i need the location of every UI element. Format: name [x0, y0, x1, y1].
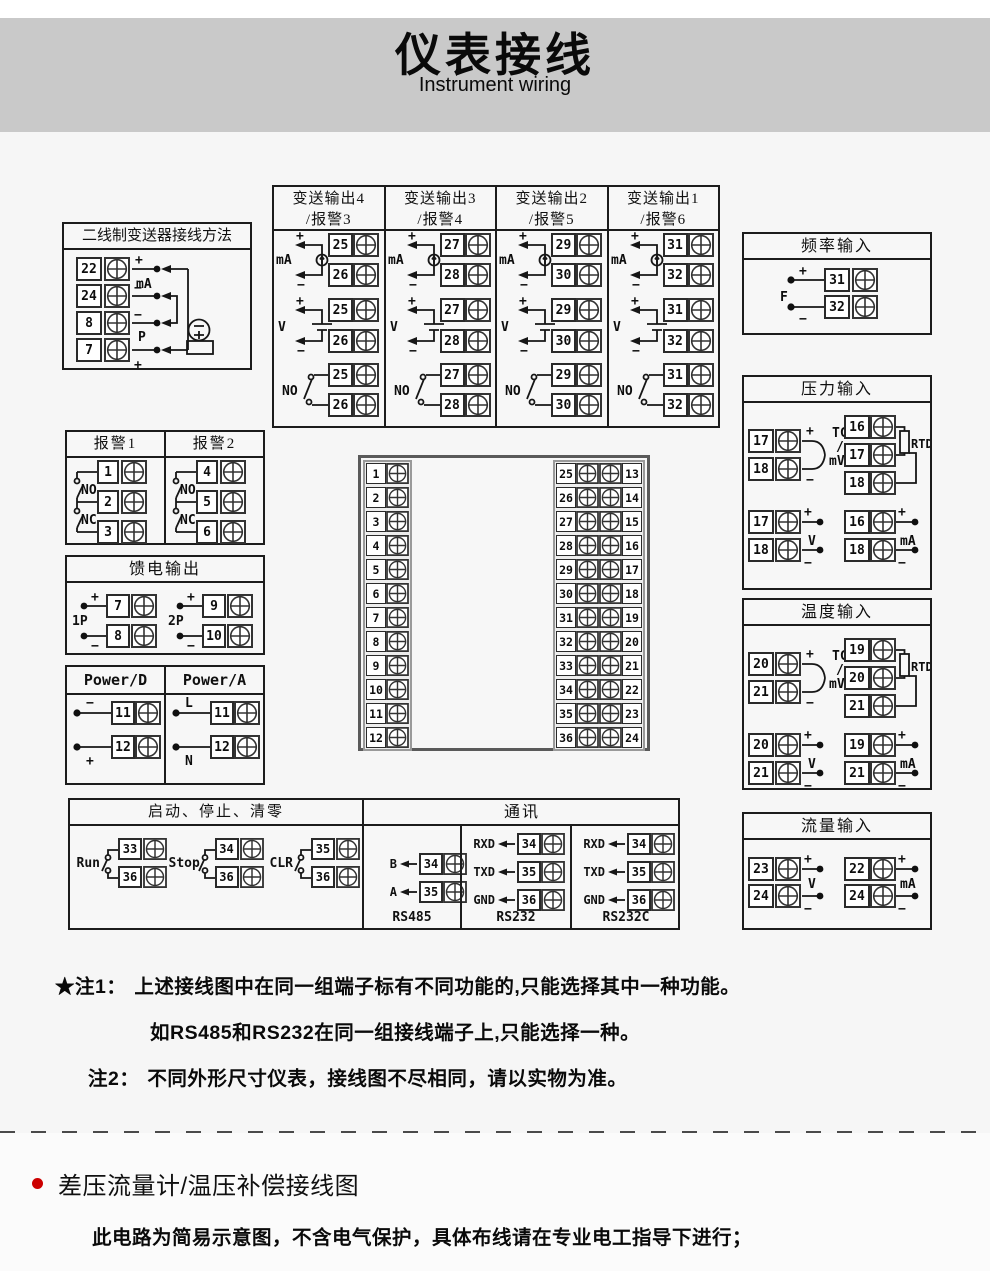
terminal-number: 1 [366, 463, 386, 484]
note-2: 注2：不同外形尺寸仪表，接线图不尽相同，请以实物为准。 [88, 1062, 627, 1091]
terminal: 20 [748, 652, 802, 676]
signal-label: V [501, 320, 509, 335]
box-title: 温度输入 [744, 600, 930, 626]
column-title-line1: 变送输出4 [274, 189, 384, 210]
polarity-label: − [898, 902, 906, 917]
terminal-pair: 3321 [556, 655, 642, 676]
screw-terminal-icon [386, 535, 409, 556]
terminal: 8 [106, 624, 158, 648]
terminal-number: 6 [366, 583, 386, 604]
terminal-number: 22 [622, 679, 642, 700]
polarity-label: − [134, 308, 142, 323]
screw-terminal-icon [870, 857, 896, 881]
column-title-line1: 变送输出1 [609, 189, 719, 210]
terminal: 22 [844, 857, 896, 881]
screw-terminal-icon [850, 268, 880, 292]
terminal-number: 22 [844, 857, 870, 881]
terminal-number: 18 [748, 457, 774, 481]
terminal-number: 29 [556, 559, 576, 580]
terminal: 31 [663, 298, 714, 322]
terminal-number: 23 [622, 703, 642, 724]
screw-terminal-icon [335, 866, 361, 888]
terminal: 5 [366, 559, 409, 580]
terminal-number: 2 [366, 487, 386, 508]
signal-label: mA [499, 253, 515, 268]
screw-terminal-icon [541, 833, 565, 855]
terminal: 19 [844, 733, 896, 757]
terminal: 25 [328, 233, 379, 257]
screw-terminal-icon [234, 735, 260, 759]
terminal: 26 [328, 329, 379, 353]
arrow-left-icon [399, 859, 417, 869]
screw-terminal-icon [774, 680, 802, 704]
current-source-icon [428, 255, 439, 266]
power-terminal-label: N [185, 754, 193, 769]
terminal-number: 34 [419, 853, 443, 875]
column-title-line1: 变送输出3 [386, 189, 496, 210]
terminal-number: 3 [366, 511, 386, 532]
terminal-number: 19 [844, 733, 870, 757]
terminal-number: 30 [551, 393, 576, 417]
terminal-number: 18 [748, 538, 774, 562]
terminal-number: 34 [215, 838, 239, 860]
polarity-label: − [804, 902, 812, 917]
screw-terminal-icon [218, 520, 248, 544]
screw-terminal-icon [870, 884, 896, 908]
terminal: 32 [663, 329, 714, 353]
terminal-number: 35 [627, 861, 651, 883]
terminal: 7 [366, 607, 409, 628]
terminal-number: 35 [419, 881, 443, 903]
terminal-number: 31 [824, 268, 850, 292]
polarity-label: − [898, 779, 906, 790]
screw-terminal-icon [576, 703, 599, 724]
terminal: 30 [551, 393, 602, 417]
terminal-number: 34 [556, 679, 576, 700]
polarity-label: + [631, 294, 639, 309]
footer-subtext: 此电路为简易示意图，不含电气保护，具体布线请在专业电工指导下进行； [92, 1221, 752, 1250]
column-title: 变送输出1 /报警6 [609, 187, 719, 231]
arrow-left-icon [399, 887, 417, 897]
sensor-type-label: RTD [911, 437, 932, 451]
terminal-number: 36 [118, 866, 142, 888]
note-text: 上述接线图中在同一组端子标有不同功能的,只能选择其中一种功能。 [134, 976, 740, 998]
terminal: 12 [210, 735, 260, 759]
screw-terminal-icon [850, 295, 880, 319]
terminal-number: 29 [551, 298, 576, 322]
column-title-line2: /报警6 [609, 210, 719, 231]
page-subtitle: Instrument wiring [0, 74, 990, 97]
terminal-number: 19 [844, 638, 870, 662]
transmit-outputs-panel: 变送输出4 /报警3 + mA − + [272, 185, 720, 428]
screw-terminal-icon [774, 884, 802, 908]
terminal: 5 [196, 490, 248, 514]
screw-terminal-icon [226, 594, 254, 618]
terminal-number: 27 [440, 298, 465, 322]
comm-row: TXD35 [575, 861, 675, 883]
terminal-number: 5 [196, 490, 218, 514]
terminal-number: 32 [663, 393, 688, 417]
terminal: 4 [366, 535, 409, 556]
comm-row: RXD34 [465, 833, 565, 855]
terminal: 27 [440, 233, 491, 257]
screw-terminal-icon [870, 443, 896, 467]
alarm-column: 报警1 NO NC 1 2 3 [67, 432, 164, 543]
terminal-pair: 2816 [556, 535, 642, 556]
polarity-label: + [898, 728, 906, 743]
terminal-number: 15 [622, 511, 642, 532]
terminal-number: 24 [622, 727, 642, 748]
terminal: 16 [844, 415, 896, 439]
column-title: 变送输出4 /报警3 [274, 187, 384, 231]
protocol-caption: RS485 [364, 910, 460, 925]
screw-terminal-icon [576, 487, 599, 508]
terminal-number: 25 [328, 298, 353, 322]
screw-terminal-icon [576, 298, 602, 322]
polarity-label: + [187, 592, 195, 605]
screw-terminal-icon [239, 838, 265, 860]
screw-terminal-icon [119, 460, 149, 484]
terminal: 1 [97, 460, 149, 484]
terminal: 36 [627, 889, 675, 911]
terminal: 10 [366, 679, 409, 700]
terminal-number: 24 [76, 284, 102, 308]
contact-label: NO [617, 384, 633, 399]
screw-terminal-icon [386, 559, 409, 580]
contact-label: NO [180, 483, 196, 498]
footer-heading: 差压流量计/温压补偿接线图 [58, 1166, 359, 1201]
protocol-caption: RS232 [462, 910, 570, 925]
column-title-line2: /报警4 [386, 210, 496, 231]
terminal: 17 [844, 443, 896, 467]
screw-terminal-icon [102, 338, 132, 362]
polarity-label: − [187, 639, 195, 652]
screw-terminal-icon [353, 329, 379, 353]
terminal: 36 [215, 866, 265, 888]
screw-terminal-icon [226, 624, 254, 648]
terminal-number: 31 [556, 607, 576, 628]
terminal: 19 [844, 638, 896, 662]
screw-terminal-icon [774, 510, 802, 534]
note-text: 如RS485和RS232在同一组接线端子上,只能选择一种。 [150, 1022, 640, 1044]
terminal: 36 [311, 866, 361, 888]
signal-name: A [367, 885, 397, 899]
screw-terminal-icon [599, 511, 622, 532]
terminal-number: 5 [366, 559, 386, 580]
signal-label: / [836, 440, 844, 455]
polarity-label: + [135, 253, 143, 268]
terminal-number: 34 [627, 833, 651, 855]
screw-terminal-icon [870, 510, 896, 534]
terminal-number: 33 [556, 655, 576, 676]
column-title: Power/A [166, 667, 263, 695]
terminal: 24 [748, 884, 802, 908]
screw-terminal-icon [599, 679, 622, 700]
terminal: 34 [627, 833, 675, 855]
terminal: 34 [215, 838, 265, 860]
terminal: 28 [440, 329, 491, 353]
terminal-number: 21 [844, 694, 870, 718]
screw-terminal-icon [651, 861, 675, 883]
terminal-number: 6 [196, 520, 218, 544]
terminal: 17 [748, 510, 802, 534]
signal-name: TXD [465, 865, 495, 879]
terminal: 7 [76, 338, 132, 362]
terminal: 27 [440, 363, 491, 387]
terminal: 26 [328, 393, 379, 417]
screw-terminal-icon [119, 520, 149, 544]
footer-area [0, 1133, 990, 1271]
contact-label: NC [81, 513, 97, 528]
terminal-number: 36 [556, 727, 576, 748]
terminal: 9 [366, 655, 409, 676]
red-bullet-icon [32, 1178, 43, 1189]
terminal-number: 17 [748, 510, 774, 534]
screw-terminal-icon [774, 538, 802, 562]
terminal-number: 16 [844, 510, 870, 534]
terminal: 30 [551, 329, 602, 353]
power-column: Power/A L N 11 12 [164, 667, 263, 783]
box-title: 流量输入 [744, 814, 930, 840]
comm-row: GND36 [575, 889, 675, 911]
terminal: 11 [111, 701, 161, 725]
polarity-label: − [804, 556, 812, 571]
signal-label: mA [136, 277, 152, 292]
column-title: 报警2 [166, 432, 263, 458]
terminal: 18 [844, 471, 896, 495]
screw-terminal-icon [576, 363, 602, 387]
terminal-number: 29 [551, 233, 576, 257]
screw-terminal-icon [353, 393, 379, 417]
terminal-number: 9 [202, 594, 226, 618]
terminal: 3 [366, 511, 409, 532]
polarity-label: + [408, 294, 416, 309]
polarity-label: + [898, 505, 906, 520]
terminal: 35 [517, 861, 565, 883]
terminal-number: 35 [517, 861, 541, 883]
screw-terminal-icon [599, 487, 622, 508]
terminal-number: 24 [748, 884, 774, 908]
power-wiring-glyphs: − + [67, 695, 111, 785]
screw-terminal-icon [234, 701, 260, 725]
terminal: 11 [210, 701, 260, 725]
terminal: 9 [202, 594, 254, 618]
terminal: 35 [311, 838, 361, 860]
loop-label: 2P [168, 614, 184, 629]
rtd-resistor-icon [900, 431, 909, 453]
polarity-label: + [804, 728, 812, 743]
screw-terminal-icon [102, 311, 132, 335]
switch-label: Run [72, 856, 100, 871]
screw-terminal-icon [774, 733, 802, 757]
screw-terminal-icon [576, 727, 599, 748]
screw-terminal-icon [386, 727, 409, 748]
signal-label: F [780, 290, 788, 305]
sensor-input-box: 温度输入 + − TC / mV RTD + V − [742, 598, 932, 790]
power-terminal-label: + [86, 754, 94, 769]
terminal-number: 12 [366, 727, 386, 748]
polarity-label: − [806, 473, 814, 488]
screw-terminal-icon [688, 393, 714, 417]
top-strip [0, 0, 990, 18]
terminal-number: 31 [663, 363, 688, 387]
screw-terminal-icon [353, 263, 379, 287]
screw-terminal-icon [688, 263, 714, 287]
signal-label: mA [900, 877, 916, 892]
terminal: 24 [844, 884, 896, 908]
terminal: 3 [97, 520, 149, 544]
feed-pairs: 1P + − 7 8 2P + [67, 583, 263, 652]
flow-input-box: 流量输入 + V − + mA − 23 24 22 24 [742, 812, 932, 930]
screw-terminal-icon [599, 535, 622, 556]
terminal-number: 20 [748, 733, 774, 757]
screw-terminal-icon [135, 735, 161, 759]
switch-lever [77, 485, 83, 528]
terminal: 7 [106, 594, 158, 618]
terminal-number: 2 [97, 490, 119, 514]
screw-terminal-icon [870, 733, 896, 757]
banner: 仪表接线 Instrument wiring [0, 18, 990, 132]
terminal-number: 30 [556, 583, 576, 604]
screw-terminal-icon [774, 857, 802, 881]
terminal: 20 [748, 733, 802, 757]
screw-terminal-icon [870, 415, 896, 439]
screw-terminal-icon [465, 233, 491, 257]
page-title: 仪表接线 [0, 18, 990, 79]
terminal-number: 27 [556, 511, 576, 532]
screw-terminal-icon [576, 607, 599, 628]
power-wiring-glyphs: L N [166, 695, 210, 785]
signal-name: RXD [465, 837, 495, 851]
screw-terminal-icon [465, 298, 491, 322]
terminal: 31 [663, 363, 714, 387]
screw-terminal-icon [870, 538, 896, 562]
power-terminal-label: − [86, 696, 94, 711]
box-title: 压力输入 [744, 377, 930, 403]
terminal-number: 24 [844, 884, 870, 908]
switch-label: CLR [265, 856, 293, 871]
signal-label: V [613, 320, 621, 335]
screw-terminal-icon [386, 463, 409, 484]
run-stop-clear-section: 启动、停止、清零 Run 33 36 [70, 800, 362, 928]
terminal-number: 11 [366, 703, 386, 724]
screw-terminal-icon [386, 679, 409, 700]
comm-row: GND36 [465, 889, 565, 911]
terminal-number: 25 [328, 233, 353, 257]
transmit-output-column: 变送输出1 /报警6 + mA − + [607, 187, 719, 426]
screw-terminal-icon [774, 761, 802, 785]
terminal-pair: 2614 [556, 487, 642, 508]
signal-label: mV [829, 454, 845, 469]
signal-label: V [808, 534, 816, 549]
screw-terminal-icon [870, 666, 896, 690]
terminal-number: 14 [622, 487, 642, 508]
screw-terminal-icon [576, 559, 599, 580]
terminal-number: 16 [622, 535, 642, 556]
terminal: 25 [328, 363, 379, 387]
section-title: 通讯 [364, 800, 680, 826]
terminal-column-left: 1 2 3 4 5 6 7 8 9 10 11 12 [363, 460, 412, 751]
screw-terminal-icon [688, 329, 714, 353]
terminal-number: 32 [556, 631, 576, 652]
comm-row: A35 [367, 881, 467, 903]
terminal-number: 35 [311, 838, 335, 860]
polarity-label: − [898, 556, 906, 571]
screw-terminal-icon [576, 655, 599, 676]
screw-terminal-icon [386, 607, 409, 628]
contact-label: NO [505, 384, 521, 399]
comm-row: RXD34 [575, 833, 675, 855]
terminal-number: 3 [97, 520, 119, 544]
page: 仪表接线 Instrument wiring 二线制变送器接线方法 + mA −… [0, 0, 990, 1271]
terminal-pair: 3624 [556, 727, 642, 748]
terminal-number: 32 [663, 329, 688, 353]
feed-output-box: 馈电输出 1P + − 7 8 2P [65, 555, 265, 655]
screw-terminal-icon [386, 511, 409, 532]
feed-pair: 1P + − 7 8 [70, 592, 164, 652]
screw-terminal-icon [541, 889, 565, 911]
terminal-number: 11 [210, 701, 234, 725]
signal-name: TXD [575, 865, 605, 879]
comm-row: B34 [367, 853, 467, 875]
loop-label: 1P [72, 614, 88, 629]
terminal: 8 [76, 311, 132, 335]
signal-label: V [808, 757, 816, 772]
switch-label: Stop [169, 856, 197, 871]
protocol-caption: RS232C [572, 910, 680, 925]
signal-label: mA [276, 253, 292, 268]
two-wire-transmitter-box: 二线制变送器接线方法 + mA − − P + 22 24 8 7 [62, 222, 252, 370]
terminal-number: 16 [844, 415, 870, 439]
terminal: 21 [844, 694, 896, 718]
terminal: 18 [748, 538, 802, 562]
screw-terminal-icon [465, 329, 491, 353]
transmit-output-column: 变送输出3 /报警4 + mA − + [384, 187, 496, 426]
screw-terminal-icon [576, 583, 599, 604]
screw-terminal-icon [142, 838, 168, 860]
screw-terminal-icon [218, 490, 248, 514]
note-tag: 注2： [88, 1068, 139, 1090]
frequency-input-box: 频率输入 + F − 31 32 [742, 232, 932, 335]
polarity-label: − [409, 278, 417, 293]
terminal-pair: 3220 [556, 631, 642, 652]
terminal: 20 [844, 666, 896, 690]
polarity-label: + [519, 231, 527, 244]
arrow-left-icon [497, 839, 515, 849]
screw-terminal-icon [688, 233, 714, 257]
screw-terminal-icon [386, 655, 409, 676]
terminal: 34 [517, 833, 565, 855]
terminal-number: 20 [622, 631, 642, 652]
signal-label: mV [829, 677, 845, 692]
column-title: 变送输出3 /报警4 [386, 187, 496, 231]
note-1-continued: 如RS485和RS232在同一组接线端子上,只能选择一种。 [150, 1016, 640, 1045]
terminal: 8 [366, 631, 409, 652]
terminal: 28 [440, 393, 491, 417]
signal-label: mA [900, 757, 916, 772]
terminal: 25 [328, 298, 379, 322]
column-title-line2: /报警3 [274, 210, 384, 231]
terminal: 10 [202, 624, 254, 648]
terminal-number: 28 [440, 329, 465, 353]
arrow-left-icon [607, 895, 625, 905]
rs232c-cell: RXD34 TXD35 GND36 RS232C [570, 826, 680, 930]
terminal: 29 [551, 233, 602, 257]
sensor-type-label: RTD [911, 660, 932, 674]
polarity-label: − [799, 312, 807, 327]
screw-terminal-icon [870, 761, 896, 785]
contact-label: NO [282, 384, 298, 399]
